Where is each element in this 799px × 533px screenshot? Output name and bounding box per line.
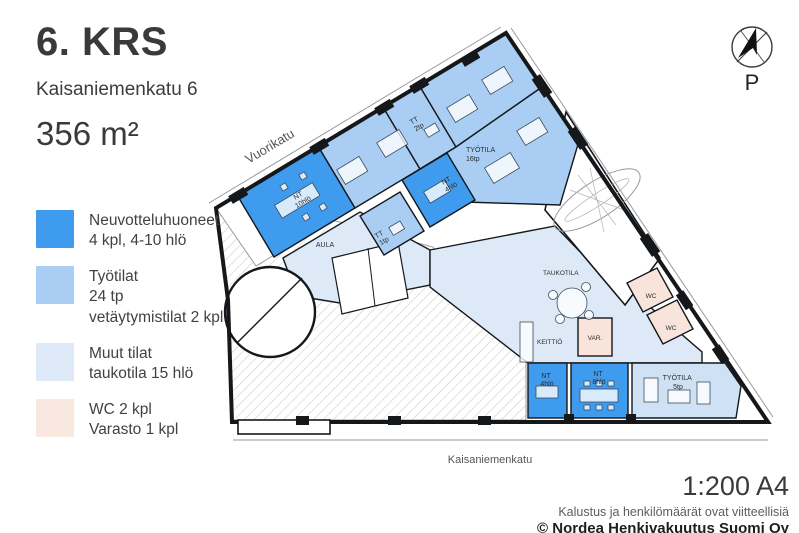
area-value: 356 m² (36, 115, 198, 153)
room-label-nt4-bottom: NT 4hlö (540, 373, 553, 388)
legend-line: Muut tilat (89, 344, 193, 364)
room-label-wc-b: WC (666, 325, 677, 332)
compass-label: P (745, 70, 760, 95)
legend-line: Varasto 1 kpl (89, 420, 178, 440)
address-subtitle: Kaisaniemenkatu 6 (36, 79, 198, 101)
legend-line: taukotila 15 hlö (89, 364, 193, 384)
legend-item-wc-storage: WC 2 kpl Varasto 1 kpl (36, 399, 236, 440)
scale-label: 1:200 A4 (537, 471, 789, 502)
north-arrow-icon (732, 27, 772, 67)
room-label-taukotila: TAUKOTILA (543, 270, 579, 277)
legend-line: WC 2 kpl (89, 400, 178, 420)
legend-swatch-work (36, 266, 74, 304)
legend-line: 24 tp (89, 287, 223, 307)
page-title: 6. KRS (36, 20, 198, 65)
footer: 1:200 A4 Kalustus ja henkilömäärät ovat … (537, 471, 789, 533)
legend-line: Työtilat (89, 267, 223, 287)
room-label-nt8: NT 8hlö (592, 371, 605, 386)
legend-swatch-meeting (36, 210, 74, 248)
legend-swatch-other (36, 343, 74, 381)
round-tower (225, 267, 315, 357)
legend-line: vetäytymistilat 2 kpl (89, 308, 223, 328)
legend-swatch-wc (36, 399, 74, 437)
room-label-keittio: KEITTIÖ (537, 338, 562, 346)
disclaimer-text: Kalustus ja henkilömäärät ovat viitteell… (537, 505, 789, 519)
copyright-text: © Nordea Henkivakuutus Suomi Oy (537, 520, 789, 533)
legend-line: Neuvotteluhuoneet (89, 211, 219, 231)
street-label-vuorikatu: Vuorikatu (242, 126, 296, 167)
legend: Neuvotteluhuoneet 4 kpl, 4-10 hlö Työtil… (36, 210, 236, 455)
room-label-wc-a: WC (646, 293, 657, 300)
bottom-bay (238, 420, 330, 434)
floorplan-page: NT 10hlö TT 2tp NT 4hlö TT 1tp TYÖTILA 1… (0, 0, 799, 533)
title-block: 6. KRS Kaisaniemenkatu 6 356 m² (36, 20, 198, 153)
legend-item-meeting-rooms: Neuvotteluhuoneet 4 kpl, 4-10 hlö (36, 210, 236, 251)
legend-item-work-spaces: Työtilat 24 tp vetäytymistilat 2 kpl (36, 266, 236, 327)
legend-line: 4 kpl, 4-10 hlö (89, 231, 219, 251)
room-label-aula: AULA (316, 242, 335, 249)
legend-item-other-spaces: Muut tilat taukotila 15 hlö (36, 343, 236, 384)
room-label-varasto: VAR. (588, 335, 603, 342)
street-label-kaisaniemenkatu: Kaisaniemenkatu (448, 454, 532, 466)
